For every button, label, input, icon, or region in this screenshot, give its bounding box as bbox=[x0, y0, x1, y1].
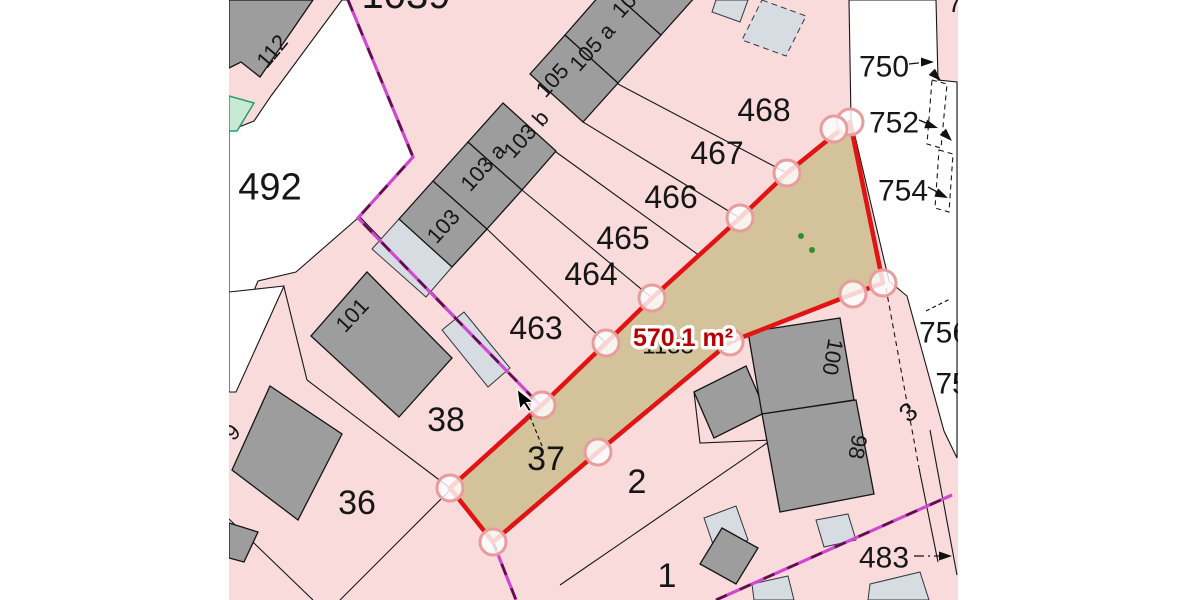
parcel-label-38: 38 bbox=[427, 401, 465, 439]
selection-vertex-handle[interactable] bbox=[870, 270, 896, 296]
selection-vertex-handle[interactable] bbox=[480, 529, 506, 555]
parcel-label-75-clipped: 75 bbox=[935, 368, 958, 401]
selection-vertex-handle[interactable] bbox=[593, 330, 619, 356]
map-application-window: 10397112492103103 a103 b105105 a10468467… bbox=[0, 0, 1200, 600]
parcel-label-7-clipped: 7 bbox=[948, 0, 958, 18]
map-viewport[interactable]: 10397112492103103 a103 b105105 a10468467… bbox=[229, 0, 958, 600]
parcel-label-752: 752 bbox=[869, 107, 919, 140]
landuse-dot-icon bbox=[798, 233, 804, 239]
selection-vertex-handle[interactable] bbox=[529, 392, 555, 418]
selection-vertex-handle[interactable] bbox=[585, 439, 611, 465]
house-label-98: 98 bbox=[843, 433, 872, 461]
parcel-label-483: 483 bbox=[859, 542, 909, 575]
parcel-label-754: 754 bbox=[878, 175, 928, 208]
cadastral-map[interactable]: 10397112492103103 a103 b105105 a10468467… bbox=[229, 0, 958, 600]
parcel-label-492: 492 bbox=[238, 166, 301, 208]
parcel-label-1: 1 bbox=[658, 557, 677, 595]
parcel-label-465: 465 bbox=[596, 220, 649, 256]
selection-vertex-handle[interactable] bbox=[639, 285, 665, 311]
selection-vertex-handle[interactable] bbox=[840, 281, 866, 307]
parcel-label-463: 463 bbox=[509, 310, 562, 346]
landuse-dot-icon bbox=[809, 247, 815, 253]
parcel-label-467: 467 bbox=[690, 135, 743, 171]
parcel-label-36: 36 bbox=[338, 484, 376, 522]
parcel-label-750: 750 bbox=[859, 51, 909, 84]
parcel-label-468: 468 bbox=[737, 92, 790, 128]
parcel-label-2: 2 bbox=[628, 463, 647, 501]
parcel-label-466: 466 bbox=[644, 179, 697, 215]
selection-vertex-handle[interactable] bbox=[727, 205, 753, 231]
parcel-label-756-clipped: 756 bbox=[919, 317, 958, 350]
parcel-label-1039: 1039 bbox=[362, 0, 451, 17]
selection-vertex-handle[interactable] bbox=[774, 160, 800, 186]
parcel-label-37: 37 bbox=[527, 440, 565, 478]
parcel-label-464: 464 bbox=[564, 256, 617, 292]
selection-vertex-handle[interactable] bbox=[821, 116, 847, 142]
selected-area-label: 570.1 m² bbox=[633, 324, 733, 352]
selection-vertex-handle[interactable] bbox=[437, 475, 463, 501]
